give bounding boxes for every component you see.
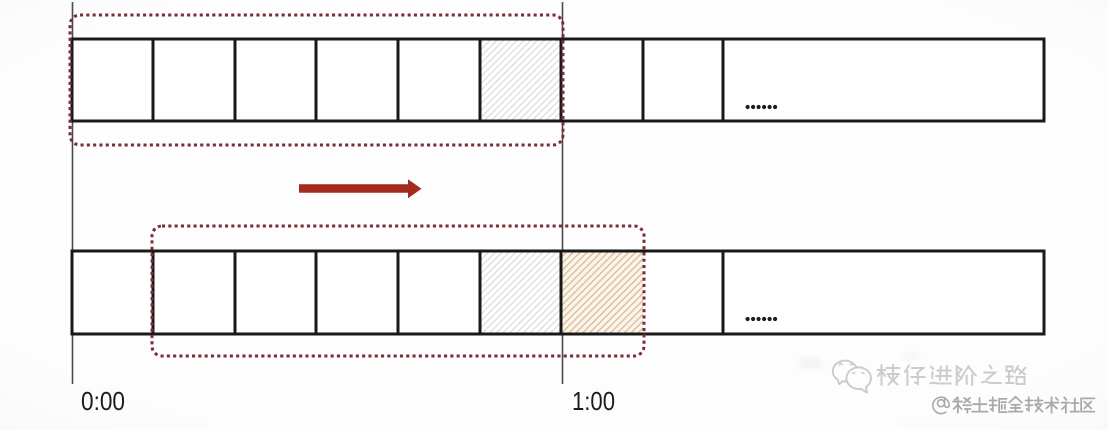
svg-text:0:00: 0:00 xyxy=(81,386,125,416)
svg-text:1:00: 1:00 xyxy=(572,386,615,416)
